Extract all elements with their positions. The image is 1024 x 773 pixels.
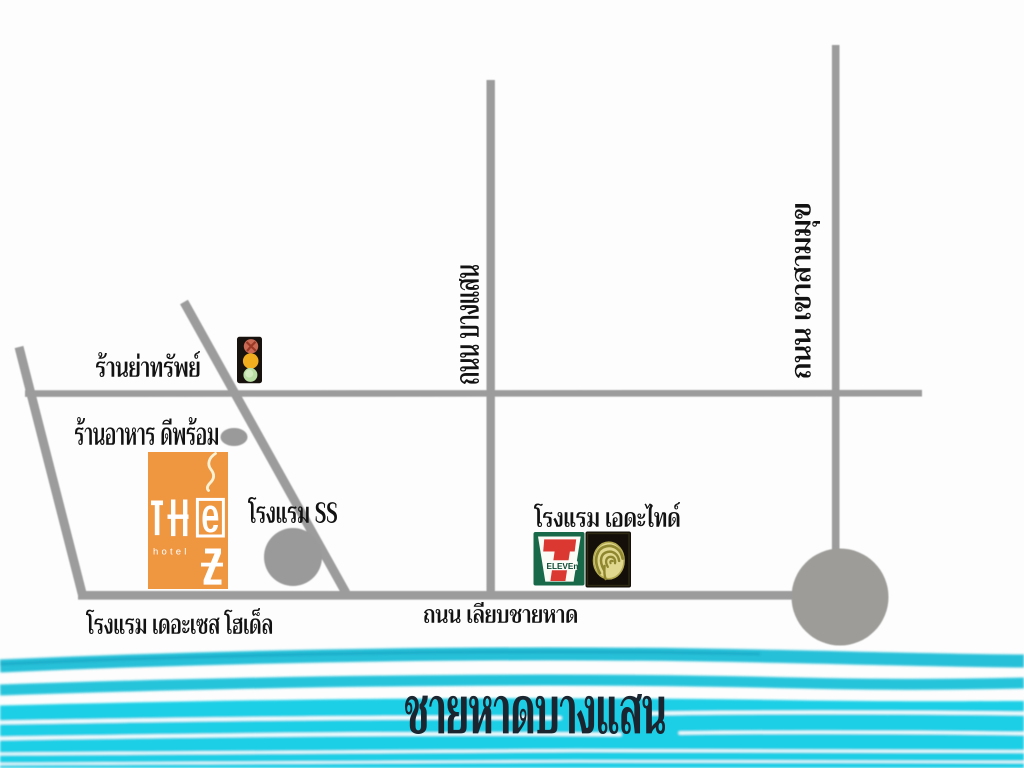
svg-text:hotel: hotel — [153, 547, 190, 558]
svg-text:ELEVEn: ELEVEn — [547, 562, 579, 571]
